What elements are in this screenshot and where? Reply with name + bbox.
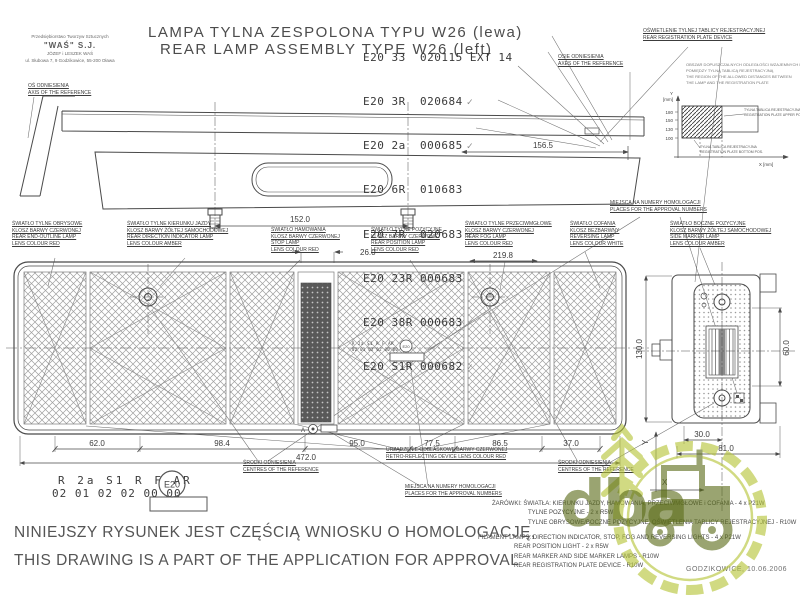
marking-a-text: A (301, 428, 305, 434)
inset-chart: Y [mm] 180 150 130 100 X [mm] (663, 91, 788, 167)
bulbs-pl-line: ŻARÓWKI: ŚWIATŁA: KIERUNKU JAZDY, HAMOWA… (492, 500, 796, 509)
inset-y-axis-label: Y (670, 91, 673, 96)
axes-ref-pl: OSIE ODNIESIENIA (558, 54, 623, 61)
label-side-marker-lamp: ŚWIATŁO BOCZNE POZYCYJNEKLOSZ BARWY ŻÓŁT… (670, 221, 771, 247)
label-fog-lamp: ŚWIATŁO TYLNE PRZECIWMGŁOWEKLOSZ BARWY C… (465, 221, 552, 247)
dim-152: 152.0 (290, 215, 311, 224)
side-view (636, 262, 796, 512)
inset-y-unit: [mm] (663, 97, 673, 102)
axes-of-reference-label: OSIE ODNIESIENIA AXES OF THE REFERENCE (558, 54, 623, 67)
axis-y-label: Y (641, 439, 650, 445)
approval-row: E20 38R 000683✓ (363, 316, 517, 331)
place-and-date: GODZIKOWICE, 10.06.2006 (686, 566, 787, 573)
approval-row: E20 23R 000683 (363, 272, 517, 287)
label-end-outline-lamp: ŚWIATŁO TYLNE OBRYSOWEKLOSZ BARWY CZERWO… (12, 221, 82, 247)
dim-156: 156.5 (533, 141, 554, 150)
approval-number-plate (321, 425, 337, 432)
dim-60: 60.0 (782, 340, 791, 356)
inset-note-line: THE LAMP AND THE REGISTRATION PLATE (686, 80, 800, 86)
top-view (20, 96, 644, 232)
label-position-lamp: ŚWIATŁO TYLNE POZYCYJNEKLOSZ BARWY CZERW… (371, 227, 442, 253)
side-bolt-icon (652, 344, 660, 356)
reg-plate-en: REAR REGISTRATION PLATE DEVICE (643, 35, 765, 42)
dim-98: 98.4 (214, 439, 230, 448)
bulbs-spec-pl: ŻARÓWKI: ŚWIATŁA: KIERUNKU JAZDY, HAMOWA… (492, 500, 796, 528)
approval-marking-block: R 2a S1 R F AR 02 01 02 02 00 00 E20 (52, 471, 207, 511)
inset-x-unit: X [mm] (759, 162, 773, 167)
bulbs-pl-line: TYLNE POZYCYJNE - 2 x R5W (492, 509, 796, 518)
inset-tick-130: 130 (665, 127, 673, 132)
bulbs-pl-line: TYLNE OBRYSOWE/BOCZNE POZYCYJNE, OŚWIETL… (492, 519, 796, 528)
retro-reflector-strip (301, 283, 331, 422)
technical-drawing-sheet: 152.0 156.5 26.0 219.8 (0, 0, 800, 600)
axis-ref-pl: OŚ ODNIESIENIA (28, 83, 91, 90)
approval-row: E20 S1R 000682✓ (363, 360, 517, 375)
approval-row: E20 6R 010683 (363, 183, 517, 198)
reg-plate-pl: OŚWIETLENIE TYLNEJ TABLICY REJESTRACYJNE… (643, 28, 765, 35)
dim-95: 95.0 (349, 439, 365, 448)
homologation-statement-pl: NINIEJSZY RYSUNEK JEST CZĘŚCIĄ WNIOSKU O… (14, 524, 536, 542)
axis-x-label: X (662, 478, 668, 487)
front-view-dimensions (20, 436, 620, 466)
axis-ref-en: AXIS OF THE REFERENCE (28, 90, 91, 97)
label-stop-lamp: ŚWIATŁO HAMOWANIAKLOSZ BARWY CZERWONEJ S… (271, 227, 340, 253)
marking-numbers: 02 01 02 02 00 00 (52, 487, 182, 500)
label-retro-reflector: URZĄDZENIE ODBLASKOWE BARWY CZERWONEJRET… (386, 447, 507, 460)
inset-tick-180: 180 (665, 110, 673, 115)
reg-plate-device-label: OŚWIETLENIE TYLNEJ TABLICY REJESTRACYJNE… (643, 28, 765, 41)
axes-ref-en: AXES OF THE REFERENCE (558, 61, 623, 68)
inset-upper-line: REGISTRATION PLATE UPPER POS. (744, 113, 798, 118)
front-view: R 2a S1 R F AR 02 01 02 02 00 00 E20 A (6, 262, 650, 434)
homologation-statement-en: THIS DRAWING IS A PART OF THE APPLICATIO… (14, 552, 519, 570)
label-approval-places-top: MIEJSCA NA NUMERY HOMOLOGACJIPLACES FOR … (610, 200, 707, 213)
label-centres-of-reference-2: ŚRODKI ODNIESIENIACENTRES OF THE REFEREN… (558, 460, 634, 473)
inset-tick-100: 100 (665, 136, 673, 141)
axis-of-reference-label: OŚ ODNIESIENIA AXIS OF THE REFERENCE (28, 83, 91, 96)
label-reversing-lamp: ŚWIATŁO COFANIAKLOSZ BEZBARWNY REVERSING… (570, 221, 623, 247)
inset-lower-line: REGISTRATION PLATE BOTTOM POS. (700, 150, 780, 155)
dim-81: 81.0 (718, 444, 734, 453)
company-stamp: Przedsiębiorstwo Tworzyw Sztucznych "WAŚ… (14, 34, 126, 64)
approval-row: E20 2a 000685✓ (363, 139, 517, 154)
label-approval-places-bottom: MIEJSCA NA NUMERY HOMOLOGACJIPLACES FOR … (405, 484, 502, 497)
dim-130: 130.0 (635, 338, 644, 359)
inset-upper-plate-label: TYLNA TABLICA REJESTRACYJNA REGISTRATION… (744, 108, 798, 118)
inset-notes: OBSZAR DOPUSZCZALNYCH ODLEGŁOŚCI WZAJEMN… (686, 62, 800, 86)
label-direction-indicator-lamp: ŚWIATŁO TYLNE KIERUNKU JAZDYKLOSZ BARWY … (127, 221, 228, 247)
company-name: "WAŚ" S.J. (14, 40, 126, 51)
approval-numbers-table: E20 33 020115 EXT 14 E20 3R 020684✓ E20 … (363, 22, 517, 405)
dim-30: 30.0 (694, 430, 710, 439)
label-centres-of-reference: ŚRODKI ODNIESIENIACENTRES OF THE REFEREN… (243, 460, 319, 473)
inset-tick-150: 150 (665, 118, 673, 123)
approval-row: E20 3R 020684✓ (363, 95, 517, 110)
dim-62: 62.0 (89, 439, 105, 448)
dim-37: 37.0 (563, 439, 579, 448)
inset-lower-plate-label: TYLNA TABLICA REJESTRACYJNA REGISTRATION… (700, 145, 780, 155)
approval-row: E20 33 020115 EXT 14 (363, 51, 517, 66)
e-mark-text: E20 (164, 480, 180, 490)
company-address: ul. Słubowa 7, 9 Godzikowice, 55-200 Oła… (14, 58, 126, 64)
